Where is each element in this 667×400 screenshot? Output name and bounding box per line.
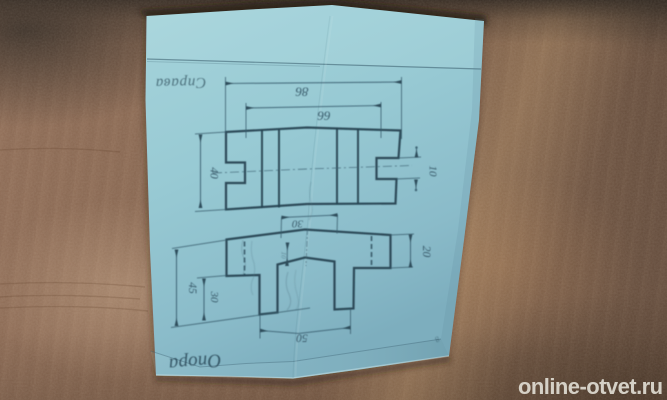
svg-text:10: 10 (427, 166, 439, 178)
svg-text:86: 86 (295, 85, 309, 100)
svg-text:20: 20 (420, 246, 432, 258)
svg-text:30: 30 (208, 291, 220, 304)
svg-text:66: 66 (317, 109, 331, 124)
svg-text:Справа: Справа (155, 74, 206, 91)
svg-text:45: 45 (186, 282, 198, 294)
svg-text:50: 50 (296, 332, 308, 344)
svg-text:40: 40 (208, 167, 220, 179)
svg-text:30: 30 (292, 218, 305, 230)
svg-text:10: 10 (279, 251, 288, 259)
